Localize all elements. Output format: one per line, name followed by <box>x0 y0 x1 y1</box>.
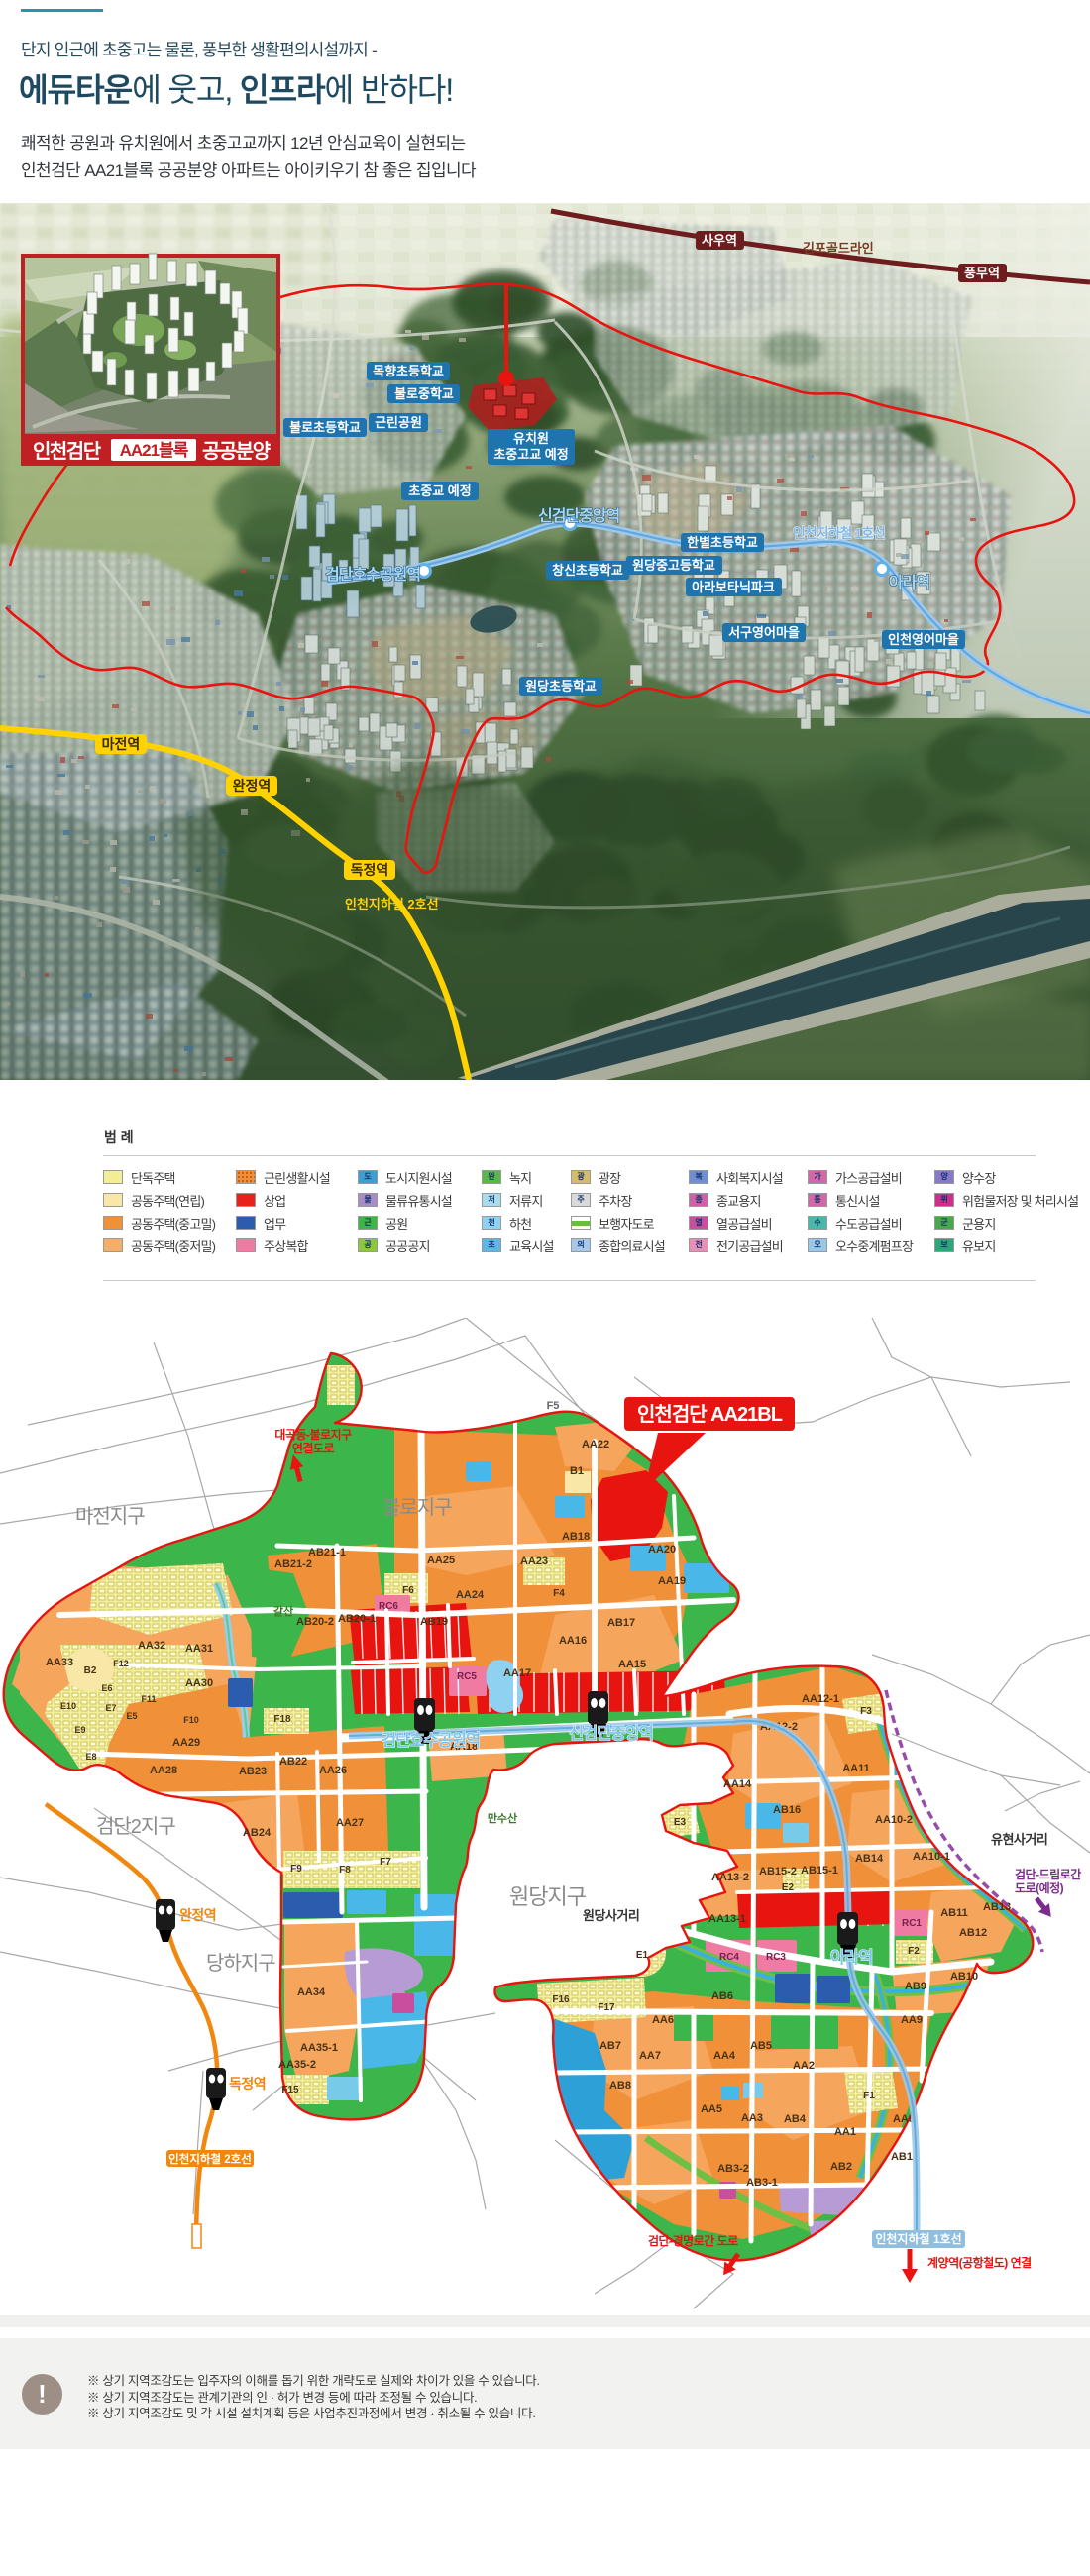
svg-text:김포골드라인: 김포골드라인 <box>803 241 874 256</box>
svg-text:원당초등학교: 원당초등학교 <box>525 679 597 694</box>
svg-text:인천영어마을: 인천영어마을 <box>888 632 959 647</box>
svg-text:F9: F9 <box>290 1864 302 1875</box>
svg-text:창신초등학교: 창신초등학교 <box>552 563 623 578</box>
svg-text:E7: E7 <box>105 1703 116 1713</box>
svg-text:초중고교 예정: 초중고교 예정 <box>493 447 568 462</box>
svg-text:계양역(공항철도) 연결: 계양역(공항철도) 연결 <box>927 2255 1032 2270</box>
svg-text:AB24: AB24 <box>243 1827 272 1839</box>
svg-text:E6: E6 <box>101 1683 112 1693</box>
svg-text:AA9: AA9 <box>901 2014 923 2026</box>
svg-text:E5: E5 <box>126 1711 137 1721</box>
svg-text:F2: F2 <box>908 1946 920 1957</box>
svg-text:AA30: AA30 <box>185 1677 213 1689</box>
svg-text:AB18: AB18 <box>562 1531 590 1543</box>
svg-text:검단-경명로간 도로: 검단-경명로간 도로 <box>648 2233 738 2248</box>
svg-text:검단2지구: 검단2지구 <box>96 1815 175 1838</box>
svg-text:갈산: 갈산 <box>273 1604 293 1618</box>
svg-text:AA35-2: AA35-2 <box>278 2059 316 2071</box>
svg-text:만수산: 만수산 <box>488 1811 517 1825</box>
svg-text:AB8: AB8 <box>609 2080 631 2092</box>
svg-text:RC5: RC5 <box>457 1671 477 1682</box>
svg-text:RC6: RC6 <box>379 1601 398 1612</box>
svg-text:AA12-1: AA12-1 <box>802 1693 839 1705</box>
svg-text:RC4: RC4 <box>719 1952 739 1963</box>
svg-text:AA13-1: AA13-1 <box>708 1913 746 1925</box>
svg-text:AA35-1: AA35-1 <box>300 2042 338 2054</box>
svg-text:AA24: AA24 <box>456 1589 485 1601</box>
svg-text:인천지하철 2호선: 인천지하철 2호선 <box>168 2152 252 2166</box>
svg-text:F1: F1 <box>863 2091 875 2101</box>
svg-text:유치원: 유치원 <box>513 431 549 446</box>
svg-text:원당지구: 원당지구 <box>509 1884 587 1909</box>
svg-text:AA5: AA5 <box>701 2103 722 2115</box>
svg-text:AB3-2: AB3-2 <box>717 2163 749 2175</box>
svg-text:E2: E2 <box>782 1882 795 1893</box>
svg-text:유현사거리: 유현사거리 <box>991 1832 1047 1847</box>
svg-text:AA3: AA3 <box>741 2112 763 2124</box>
svg-text:AB23: AB23 <box>239 1766 267 1777</box>
svg-text:AA32: AA32 <box>138 1640 165 1652</box>
svg-text:E3: E3 <box>674 1817 687 1828</box>
svg-text:근린공원: 근린공원 <box>375 415 422 430</box>
svg-text:AB5: AB5 <box>750 2040 772 2052</box>
svg-text:AB9: AB9 <box>905 1981 926 1992</box>
svg-text:아라보타닉파크: 아라보타닉파크 <box>692 580 775 594</box>
svg-text:F4: F4 <box>553 1588 565 1599</box>
svg-text:인천지하철 2호선: 인천지하철 2호선 <box>345 897 439 912</box>
svg-text:F11: F11 <box>141 1694 156 1704</box>
svg-text:독정역: 독정역 <box>229 2076 266 2092</box>
svg-text:E10: E10 <box>60 1701 76 1711</box>
svg-text:AA21블록: AA21블록 <box>120 441 189 460</box>
svg-text:마전지구: 마전지구 <box>75 1505 145 1528</box>
svg-text:AB1: AB1 <box>891 2151 913 2163</box>
svg-text:AA29: AA29 <box>172 1737 200 1749</box>
svg-text:AB19: AB19 <box>420 1616 448 1628</box>
svg-text:AB21-2: AB21-2 <box>274 1558 312 1570</box>
svg-text:초중교 예정: 초중교 예정 <box>408 483 471 498</box>
svg-text:F16: F16 <box>552 1994 570 2005</box>
svg-text:AA34: AA34 <box>297 1986 326 1998</box>
svg-text:AA31: AA31 <box>185 1643 213 1655</box>
svg-text:사우역: 사우역 <box>702 233 737 248</box>
svg-text:AB16: AB16 <box>773 1804 801 1816</box>
svg-text:AB15-2: AB15-2 <box>759 1866 797 1878</box>
svg-text:신검단중앙역: 신검단중앙역 <box>538 506 620 525</box>
svg-text:아라역: 아라역 <box>830 1948 873 1967</box>
svg-text:AA19: AA19 <box>658 1575 686 1587</box>
svg-text:신검단중앙역: 신검단중앙역 <box>569 1724 653 1743</box>
svg-text:AA4: AA4 <box>713 2050 736 2062</box>
svg-text:F8: F8 <box>339 1865 351 1876</box>
svg-text:AA16: AA16 <box>559 1635 587 1647</box>
svg-text:RC1: RC1 <box>902 1918 922 1929</box>
svg-text:AB22: AB22 <box>279 1756 307 1768</box>
svg-text:F3: F3 <box>860 1706 872 1717</box>
svg-text:AB12: AB12 <box>959 1927 987 1939</box>
svg-text:완정역: 완정역 <box>233 778 272 794</box>
svg-text:F15: F15 <box>281 2085 299 2095</box>
svg-text:B2: B2 <box>84 1665 97 1676</box>
svg-text:E1: E1 <box>636 1950 649 1961</box>
svg-text:AA20: AA20 <box>648 1544 676 1556</box>
svg-text:AA23: AA23 <box>520 1556 548 1567</box>
svg-text:불로초등학교: 불로초등학교 <box>289 420 361 435</box>
svg-text:당하지구: 당하지구 <box>206 1952 275 1975</box>
svg-text:AA10-1: AA10-1 <box>913 1851 950 1863</box>
svg-text:AA11: AA11 <box>842 1763 870 1774</box>
svg-text:AA7: AA7 <box>639 2050 661 2062</box>
svg-text:원당사거리: 원당사거리 <box>583 1908 639 1923</box>
svg-text:AB21-1: AB21-1 <box>308 1547 346 1558</box>
svg-text:AA26: AA26 <box>319 1765 347 1776</box>
svg-text:인천지하철 1호선: 인천지하철 1호선 <box>875 2231 961 2246</box>
svg-text:F10: F10 <box>183 1715 199 1725</box>
svg-text:AB6: AB6 <box>711 1990 733 2002</box>
svg-text:AA33: AA33 <box>46 1657 73 1668</box>
svg-text:AA25: AA25 <box>427 1555 455 1566</box>
svg-text:한별초등학교: 한별초등학교 <box>687 535 758 550</box>
svg-text:서구영어마을: 서구영어마을 <box>728 625 800 640</box>
svg-text:AA1: AA1 <box>834 2126 856 2138</box>
svg-text:AB20-2: AB20-2 <box>296 1616 334 1628</box>
svg-text:AA27: AA27 <box>336 1817 364 1829</box>
svg-text:AB11: AB11 <box>940 1907 968 1919</box>
svg-text:F18: F18 <box>273 1714 291 1725</box>
svg-text:인천검단: 인천검단 <box>33 440 102 463</box>
svg-text:풍무역: 풍무역 <box>964 266 1000 280</box>
svg-text:검단호수공원역: 검단호수공원역 <box>381 1731 480 1750</box>
svg-text:인천지하철 1호선: 인천지하철 1호선 <box>793 525 885 541</box>
svg-text:독정역: 독정역 <box>351 862 389 878</box>
svg-text:AA22: AA22 <box>582 1439 609 1450</box>
svg-text:F17: F17 <box>598 2002 615 2013</box>
svg-text:인천검단 AA21BL: 인천검단 AA21BL <box>637 1403 783 1426</box>
svg-text:AA14: AA14 <box>723 1778 752 1790</box>
svg-text:AB15-1: AB15-1 <box>801 1865 838 1877</box>
svg-text:AB4: AB4 <box>784 2113 807 2125</box>
svg-text:F6: F6 <box>402 1585 414 1596</box>
svg-text:AB20-1: AB20-1 <box>338 1613 376 1625</box>
svg-text:RC3: RC3 <box>766 1952 786 1963</box>
svg-text:아라역: 아라역 <box>889 574 929 591</box>
svg-text:완정역: 완정역 <box>179 1907 216 1923</box>
svg-text:AA28: AA28 <box>150 1765 177 1776</box>
svg-text:E8: E8 <box>85 1752 96 1762</box>
svg-text:마전역: 마전역 <box>102 736 141 752</box>
svg-text:원당중고등학교: 원당중고등학교 <box>632 558 715 573</box>
svg-text:AB3-1: AB3-1 <box>746 2177 778 2189</box>
svg-text:검단호수공원역: 검단호수공원역 <box>325 565 420 584</box>
svg-text:AB2: AB2 <box>830 2161 852 2173</box>
svg-text:AA17: AA17 <box>503 1667 531 1679</box>
svg-text:B1: B1 <box>570 1465 584 1477</box>
svg-text:AB7: AB7 <box>599 2040 621 2052</box>
svg-text:불로중학교: 불로중학교 <box>394 386 454 401</box>
svg-text:F12: F12 <box>113 1659 129 1668</box>
svg-text:공공분양: 공공분양 <box>202 440 272 463</box>
svg-text:E9: E9 <box>74 1725 85 1735</box>
svg-text:AA2: AA2 <box>793 2060 815 2072</box>
svg-text:F7: F7 <box>380 1857 391 1868</box>
svg-text:AB10: AB10 <box>950 1971 978 1983</box>
svg-text:AB17: AB17 <box>607 1617 635 1629</box>
svg-text:AA6: AA6 <box>652 2014 674 2026</box>
svg-text:AB14: AB14 <box>855 1853 884 1865</box>
svg-text:목향초등학교: 목향초등학교 <box>373 364 444 378</box>
svg-text:F5: F5 <box>547 1400 560 1412</box>
svg-text:AA13-2: AA13-2 <box>711 1872 749 1883</box>
svg-text:불로지구: 불로지구 <box>382 1496 452 1519</box>
svg-text:AA10-2: AA10-2 <box>875 1814 913 1826</box>
svg-text:AA15: AA15 <box>618 1659 646 1670</box>
